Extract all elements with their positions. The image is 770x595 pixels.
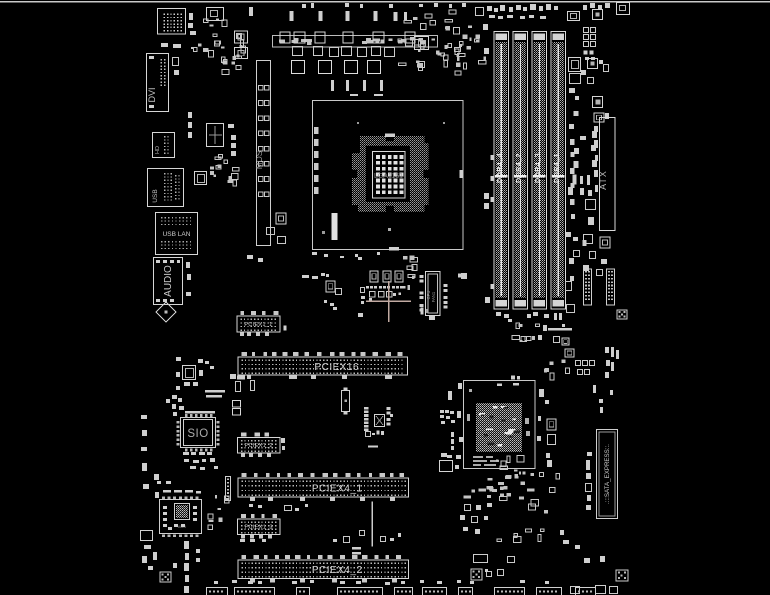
svg-text:PCIEX1_3: PCIEX1_3 [245, 525, 273, 531]
svg-text:USB LAN: USB LAN [163, 231, 191, 238]
svg-text:PCIEX4_2: PCIEX4_2 [312, 565, 363, 576]
svg-text:DDR4_3: DDR4_3 [533, 153, 542, 183]
svg-text:USB: USB [152, 189, 159, 202]
svg-text:DDR4_4: DDR4_4 [495, 153, 504, 183]
svg-text:DVI: DVI [147, 87, 157, 102]
svg-text:AUDIO: AUDIO [163, 265, 174, 297]
svg-text:DDR4_1: DDR4_1 [552, 153, 561, 183]
svg-text:MOS: MOS [255, 151, 264, 169]
svg-text:PCIEX4_1: PCIEX4_1 [312, 483, 363, 494]
svg-text:SIO: SIO [187, 428, 208, 440]
svg-text:HD: HD [155, 146, 161, 154]
svg-text:.:::SATA_EXPRESS::.: .:::SATA_EXPRESS::. [604, 444, 611, 504]
svg-text:FAN1: FAN1 [431, 291, 436, 302]
svg-text:LGA1151: LGA1151 [374, 173, 403, 180]
svg-text:PCIEX1_1: PCIEX1_1 [244, 322, 272, 328]
svg-text:PCIEX16: PCIEX16 [314, 362, 359, 373]
svg-text:DDR4_2: DDR4_2 [514, 153, 523, 183]
svg-text:ATX: ATX [598, 170, 608, 190]
svg-text:PCIEX1_2: PCIEX1_2 [245, 443, 273, 449]
